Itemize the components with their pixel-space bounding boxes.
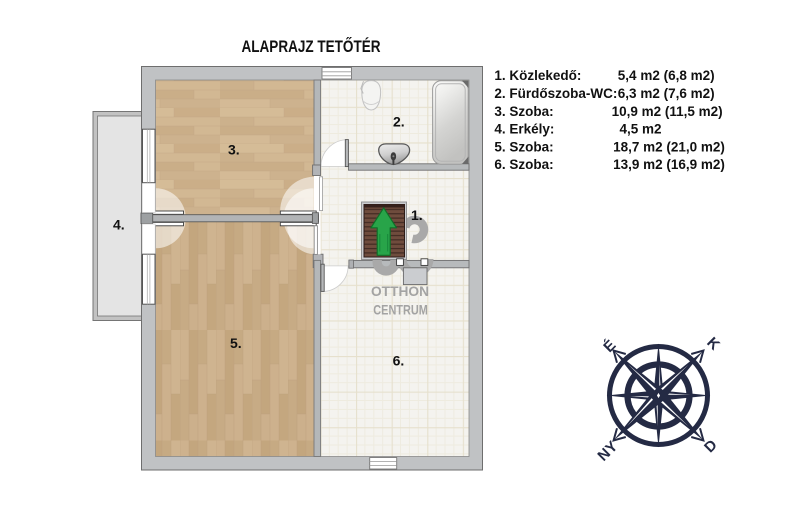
svg-text:5.: 5. bbox=[230, 335, 242, 351]
svg-text:6. Szoba:: 6. Szoba: bbox=[494, 157, 553, 172]
svg-text:3.: 3. bbox=[228, 142, 240, 158]
svg-text:10,9 m2 (11,5 m2): 10,9 m2 (11,5 m2) bbox=[612, 104, 723, 119]
svg-text:OTTHON: OTTHON bbox=[371, 284, 429, 299]
svg-text:4. Erkély:: 4. Erkély: bbox=[494, 122, 554, 137]
svg-text:5. Szoba:: 5. Szoba: bbox=[494, 139, 553, 154]
svg-text:13,9 m2 (16,9 m2): 13,9 m2 (16,9 m2) bbox=[613, 157, 725, 172]
svg-text:4,5 m2: 4,5 m2 bbox=[620, 122, 662, 137]
svg-text:1. Közlekedő:: 1. Közlekedő: bbox=[494, 68, 581, 83]
svg-text:3. Szoba:: 3. Szoba: bbox=[494, 104, 553, 119]
svg-text:18,7 m2 (21,0 m2): 18,7 m2 (21,0 m2) bbox=[613, 139, 725, 154]
svg-text:6.: 6. bbox=[393, 353, 405, 369]
svg-text:5,4 m2 (6,8 m2): 5,4 m2 (6,8 m2) bbox=[618, 68, 715, 83]
svg-text:ALAPRAJZ TETŐTÉR: ALAPRAJZ TETŐTÉR bbox=[242, 37, 381, 56]
svg-text:2.: 2. bbox=[393, 114, 405, 130]
svg-text:1.: 1. bbox=[411, 207, 423, 223]
svg-text:4.: 4. bbox=[113, 217, 125, 233]
svg-text:2. Fürdőszoba-WC:: 2. Fürdőszoba-WC: bbox=[494, 86, 617, 101]
svg-text:6,3 m2 (7,6 m2): 6,3 m2 (7,6 m2) bbox=[618, 86, 715, 101]
svg-text:CENTRUM: CENTRUM bbox=[373, 303, 428, 318]
